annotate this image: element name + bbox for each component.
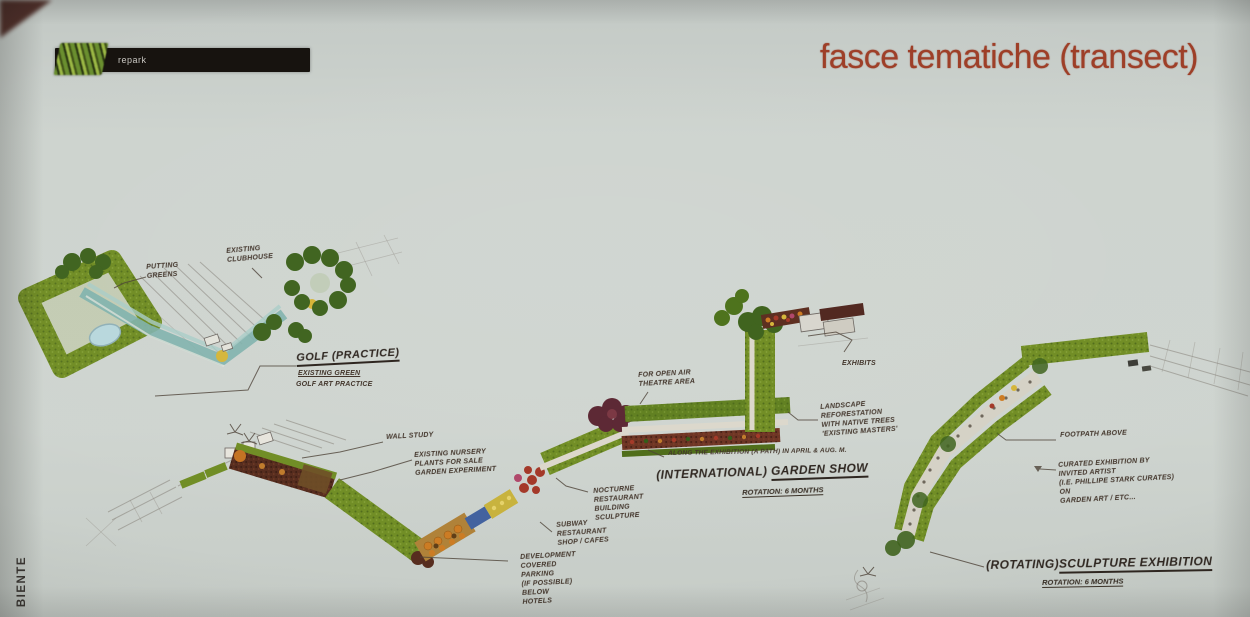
sculpture-bottom-scribbles (846, 567, 884, 610)
golf-callout-putting: PUTTING GREENS (146, 262, 179, 282)
garden-callout-exhibits: EXHIBITS (842, 360, 876, 369)
logo-text: repark (118, 55, 147, 65)
page-title: fasce tematiche (transect) (820, 38, 1198, 77)
garden-show-plan-sketch (86, 289, 868, 568)
golf-green-ring (28, 260, 152, 368)
garden-callout-subway: SUBWAY RESTAURANT SHOP / CAFES (556, 518, 609, 548)
photo-corner-shadow (0, 0, 52, 38)
sculpture-callout-curated: CURATED EXHIBITION BY INVITED ARTIST (I.… (1058, 456, 1175, 507)
sculpture-rotation-label: ROTATION: 6 MONTHS (1042, 577, 1124, 588)
golf-sub-label-2: GOLF ART PRACTICE (296, 381, 373, 390)
sculpture-pencil-grid (1150, 340, 1250, 396)
golf-sub-label-1: EXISTING GREEN (298, 370, 360, 379)
garden-callout-development: DEVELOPMENT COVERED PARKING (IF POSSIBLE… (520, 551, 578, 608)
garden-callout-landscape: LANDSCAPE REFORESTATION WITH NATIVE TREE… (820, 399, 898, 440)
sculpture-gravel-path (885, 358, 1048, 556)
transect-sketch-scene (0, 0, 1250, 617)
side-vertical-text: BIENTE (16, 556, 28, 607)
slide-photo: { "page": { "title": "fasce tematiche (t… (0, 0, 1250, 617)
sculpture-plan-label: (ROTATING)SCULPTURE EXHIBITION (986, 554, 1212, 572)
garden-band-mosaic-segment (420, 522, 470, 556)
repark-logo-icon (54, 43, 109, 75)
garden-band-path-segment (540, 430, 628, 468)
garden-band-maroon-segment (232, 446, 336, 494)
garden-callout-nursery: EXISTING NURSERY PLANTS FOR SALE GARDEN … (414, 448, 496, 479)
garden-band-olive-segment (332, 488, 434, 568)
garden-callout-theatre: FOR OPEN AIR THEATRE AREA (638, 369, 695, 390)
